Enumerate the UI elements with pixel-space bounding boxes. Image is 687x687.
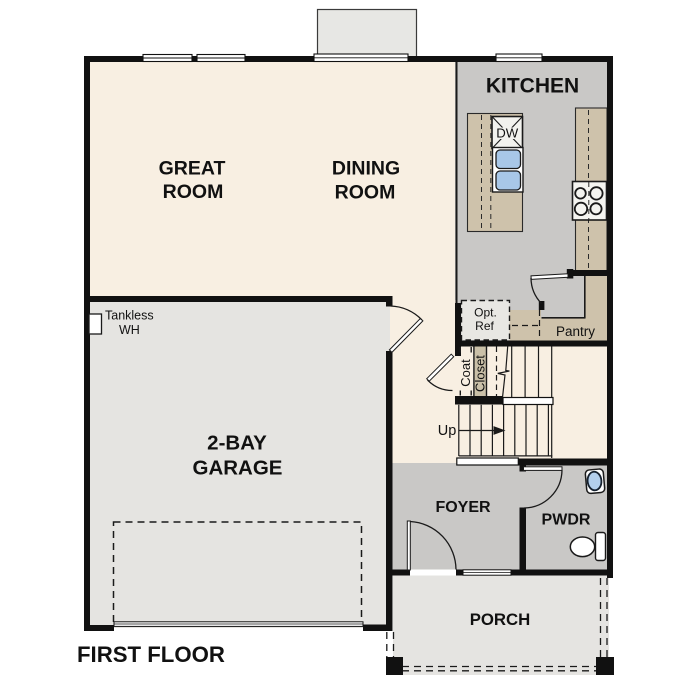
svg-text:Tankless: Tankless bbox=[105, 309, 154, 323]
svg-text:DINING: DINING bbox=[332, 158, 400, 180]
svg-text:KITCHEN: KITCHEN bbox=[486, 74, 579, 97]
svg-text:WH: WH bbox=[119, 323, 140, 337]
svg-text:Coat: Coat bbox=[458, 359, 473, 387]
svg-text:ROOM: ROOM bbox=[335, 182, 396, 204]
svg-text:ROOM: ROOM bbox=[163, 181, 224, 203]
svg-text:Up: Up bbox=[438, 423, 457, 439]
svg-text:Pantry: Pantry bbox=[556, 324, 595, 339]
svg-text:GREAT: GREAT bbox=[159, 158, 226, 180]
svg-text:2-BAY: 2-BAY bbox=[207, 432, 267, 455]
svg-text:Ref: Ref bbox=[475, 319, 494, 333]
svg-text:FIRST FLOOR: FIRST FLOOR bbox=[77, 642, 225, 667]
svg-text:DW: DW bbox=[496, 126, 519, 141]
svg-text:Opt.: Opt. bbox=[474, 306, 497, 320]
svg-text:Closet: Closet bbox=[473, 355, 488, 392]
svg-text:PWDR: PWDR bbox=[542, 512, 591, 529]
svg-text:PORCH: PORCH bbox=[470, 610, 531, 629]
svg-text:FOYER: FOYER bbox=[435, 499, 491, 516]
svg-text:GARAGE: GARAGE bbox=[193, 457, 283, 480]
